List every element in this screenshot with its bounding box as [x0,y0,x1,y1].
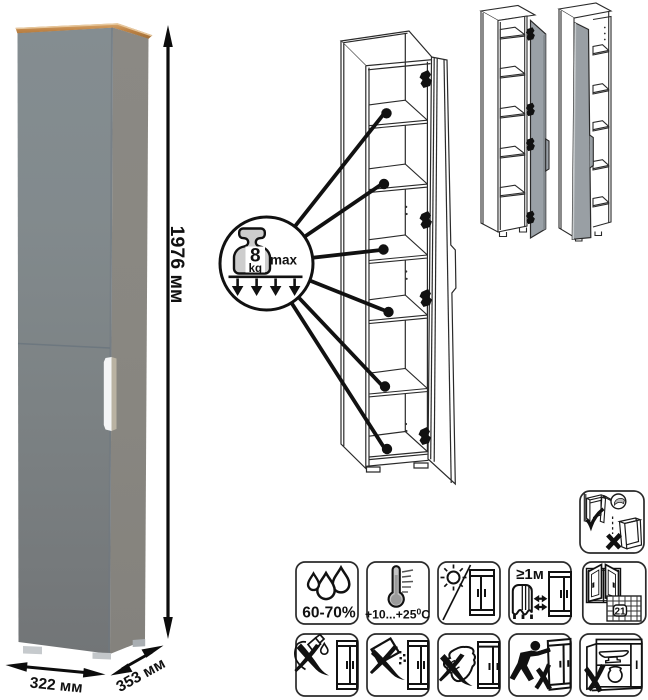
svg-text:≥1м: ≥1м [516,566,544,583]
svg-text:21: 21 [614,607,626,618]
svg-text:max: max [270,253,298,268]
svg-text:+10...+250C: +10...+250C [365,607,430,622]
svg-text:1976 мм: 1976 мм [166,226,188,304]
svg-text:60-70%: 60-70% [302,605,356,622]
svg-text:kg: kg [249,263,262,275]
